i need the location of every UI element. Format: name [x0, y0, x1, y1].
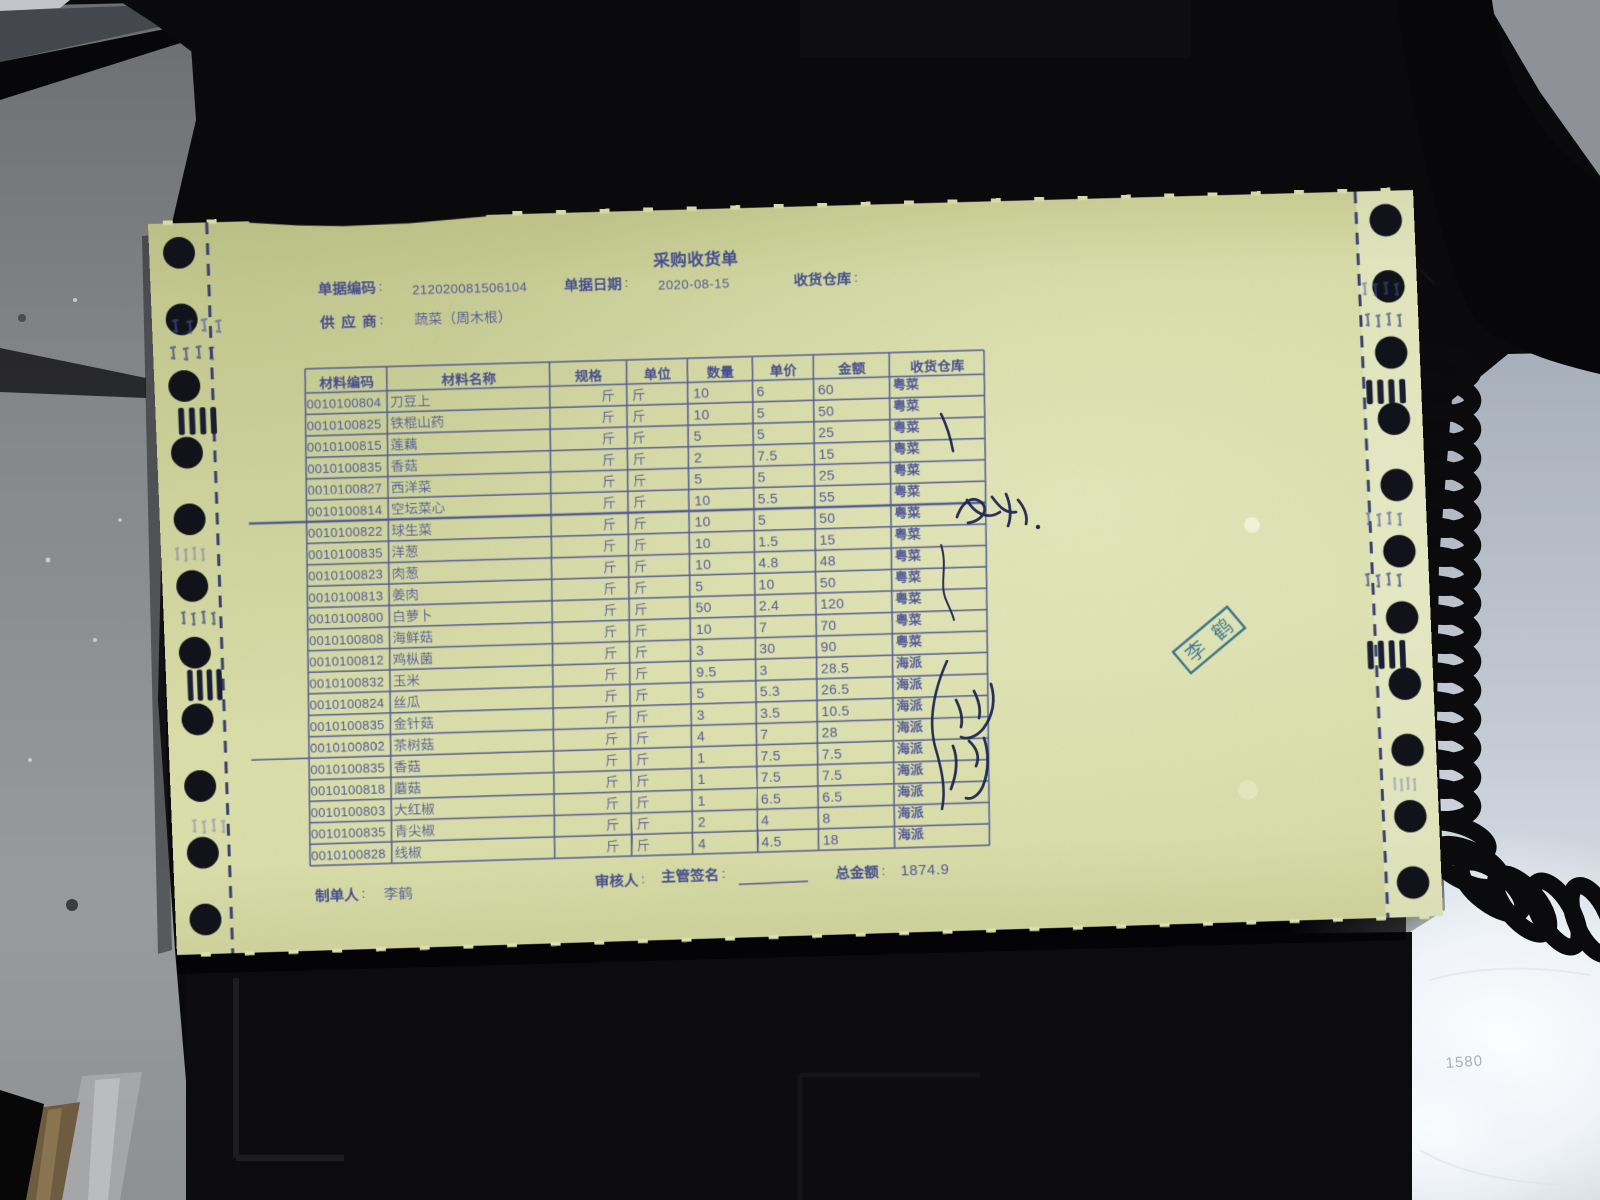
svg-text:120: 120 [820, 595, 845, 612]
svg-text:10: 10 [694, 492, 711, 508]
svg-text:7.5: 7.5 [760, 769, 781, 785]
svg-text:4: 4 [698, 835, 707, 851]
svg-text:10.5: 10.5 [821, 702, 850, 719]
svg-text:4: 4 [697, 728, 706, 744]
svg-text:1: 1 [697, 771, 706, 787]
svg-text:55: 55 [819, 488, 836, 504]
svg-text:25: 25 [819, 467, 836, 483]
svg-text:7.5: 7.5 [760, 747, 781, 763]
svg-text:8: 8 [822, 810, 831, 826]
svg-text:1580: 1580 [1445, 1052, 1483, 1072]
svg-text:0010100803: 0010100803 [310, 803, 385, 820]
svg-text:10: 10 [694, 513, 711, 529]
svg-text:50: 50 [695, 599, 712, 615]
svg-text:1.5: 1.5 [758, 533, 779, 549]
svg-text:0010100835: 0010100835 [310, 717, 385, 734]
svg-text:2.4: 2.4 [759, 597, 780, 613]
svg-text:90: 90 [820, 638, 837, 654]
svg-text:4: 4 [761, 812, 770, 828]
svg-text::: : [881, 863, 885, 878]
svg-text:0010100825: 0010100825 [307, 416, 382, 433]
svg-text:26.5: 26.5 [821, 681, 850, 698]
svg-text:0010100827: 0010100827 [307, 481, 382, 498]
svg-text:0010100835: 0010100835 [311, 825, 386, 842]
svg-text::: : [854, 270, 858, 285]
svg-text:9.5: 9.5 [696, 663, 717, 679]
svg-text:0010100823: 0010100823 [308, 567, 383, 584]
svg-text:0010100812: 0010100812 [309, 653, 384, 670]
svg-text:6: 6 [756, 383, 765, 399]
svg-text:7.5: 7.5 [822, 746, 843, 762]
svg-text:3.5: 3.5 [760, 705, 781, 721]
svg-text:10: 10 [693, 406, 710, 422]
svg-text::: : [378, 279, 382, 294]
svg-text:2: 2 [698, 814, 707, 830]
svg-text:0010100828: 0010100828 [311, 846, 386, 863]
svg-text:212020081506104: 212020081506104 [412, 279, 528, 297]
svg-text:0010100835: 0010100835 [307, 459, 382, 476]
svg-text:5.3: 5.3 [759, 683, 780, 699]
svg-text:3: 3 [696, 707, 705, 723]
svg-text:7: 7 [760, 726, 769, 742]
svg-text:5: 5 [758, 512, 767, 528]
svg-text:1: 1 [697, 750, 706, 766]
svg-text:0010100800: 0010100800 [308, 610, 383, 627]
svg-text:50: 50 [819, 510, 836, 526]
svg-text:48: 48 [819, 553, 836, 569]
svg-text:5: 5 [757, 469, 766, 485]
svg-text:10: 10 [696, 621, 713, 637]
svg-text:2: 2 [694, 449, 703, 465]
svg-text:10: 10 [693, 385, 710, 401]
svg-text:10: 10 [758, 576, 775, 592]
svg-text:1874.9: 1874.9 [900, 862, 949, 879]
svg-text::: : [722, 866, 726, 881]
svg-text:7.5: 7.5 [822, 767, 843, 783]
svg-text:2020-08-15: 2020-08-15 [658, 276, 730, 293]
svg-text:4.5: 4.5 [761, 833, 782, 850]
svg-text:30: 30 [759, 640, 776, 656]
svg-text:5: 5 [695, 578, 704, 594]
svg-text:50: 50 [818, 403, 835, 419]
svg-text:0010100818: 0010100818 [310, 782, 385, 799]
svg-text:18: 18 [822, 831, 839, 847]
svg-text:28.5: 28.5 [821, 660, 850, 677]
svg-text:15: 15 [819, 531, 836, 547]
svg-text:6.5: 6.5 [761, 790, 782, 806]
svg-text:3: 3 [696, 642, 705, 658]
svg-text:0010100824: 0010100824 [309, 696, 384, 713]
svg-text:5: 5 [693, 428, 702, 444]
svg-text:7.5: 7.5 [757, 447, 778, 463]
svg-text:1: 1 [697, 793, 706, 809]
svg-text:70: 70 [820, 617, 837, 633]
svg-text:60: 60 [818, 381, 835, 397]
svg-text:5.5: 5.5 [757, 490, 778, 506]
svg-text:0010100835: 0010100835 [310, 760, 385, 777]
svg-text:10: 10 [695, 535, 712, 551]
svg-text:0010100835: 0010100835 [308, 545, 383, 562]
svg-text:0010100808: 0010100808 [309, 631, 384, 648]
svg-text:0010100814: 0010100814 [307, 502, 382, 519]
svg-text:15: 15 [818, 446, 835, 462]
svg-text:6.5: 6.5 [822, 788, 843, 804]
svg-text:0010100802: 0010100802 [310, 739, 385, 756]
svg-text:50: 50 [820, 574, 837, 590]
svg-text:0010100822: 0010100822 [308, 524, 383, 541]
svg-text:3: 3 [759, 662, 768, 678]
svg-text:0010100832: 0010100832 [309, 674, 384, 691]
svg-text:25: 25 [818, 424, 835, 440]
svg-text::: : [624, 275, 628, 290]
svg-text:28: 28 [821, 724, 838, 740]
svg-text:0010100815: 0010100815 [307, 438, 382, 455]
svg-text::: : [361, 886, 365, 901]
svg-text:10: 10 [695, 556, 712, 572]
svg-text::: : [641, 871, 645, 886]
svg-text:0010100804: 0010100804 [306, 395, 381, 412]
svg-text:5: 5 [696, 685, 705, 701]
svg-text::: : [379, 312, 383, 327]
svg-text:4.8: 4.8 [758, 554, 779, 570]
svg-text:5: 5 [757, 405, 766, 421]
svg-text:5: 5 [757, 426, 766, 442]
svg-text:5: 5 [694, 471, 703, 487]
svg-text:0010100813: 0010100813 [308, 588, 383, 605]
svg-text:7: 7 [759, 619, 768, 635]
